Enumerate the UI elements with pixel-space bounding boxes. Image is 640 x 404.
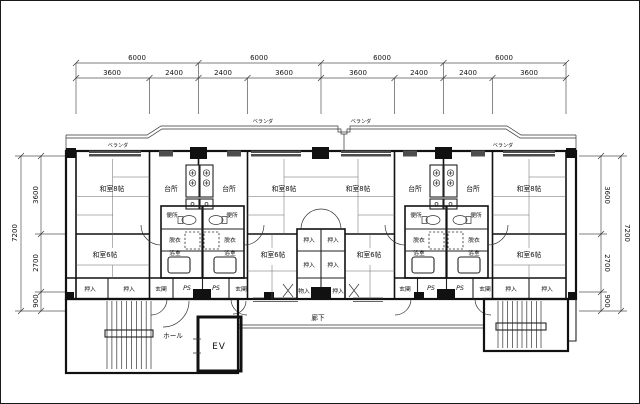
ps-label-3: PS bbox=[427, 285, 435, 292]
dim-top-minor-4: 3600 bbox=[275, 69, 293, 77]
dim-right-total: 7200 bbox=[623, 224, 631, 242]
center-closet-column bbox=[283, 209, 359, 299]
dressing-label-1: 脱衣 bbox=[169, 236, 181, 244]
dim-left-total: 7200 bbox=[11, 224, 19, 242]
closet-label-8: 押入 bbox=[505, 285, 517, 293]
closet-label-9: 押入 bbox=[541, 285, 553, 293]
veranda-label-2: ベランダ bbox=[253, 118, 273, 125]
staircase-left bbox=[66, 299, 238, 373]
dim-right-seg-3: 900 bbox=[603, 294, 611, 307]
floor-plan-sheet: 6000 6000 6000 6000 3600 2400 2400 3600 … bbox=[0, 0, 640, 404]
veranda-label-4: ベランダ bbox=[493, 142, 513, 149]
dim-top-major-3: 6000 bbox=[373, 54, 391, 62]
entrance-label-1: 玄関 bbox=[155, 285, 167, 293]
dim-left-seg-2: 2700 bbox=[32, 254, 40, 272]
left-dimension-lines: 7200 3600 2700 900 bbox=[11, 153, 66, 314]
dim-top-minor-7: 2400 bbox=[459, 69, 477, 77]
dim-top-major-1: 6000 bbox=[128, 54, 146, 62]
washitsu6-label-4: 和室6帖 bbox=[517, 250, 542, 259]
dim-right-seg-1: 3600 bbox=[603, 186, 611, 204]
toilet-label-3: 便所 bbox=[410, 211, 422, 219]
balcony-rail: ベランダ ベランダ ベランダ ベランダ bbox=[66, 118, 576, 151]
veranda-label-1: ベランダ bbox=[108, 142, 128, 149]
washitsu8-label-4: 和室8帖 bbox=[517, 184, 542, 193]
staircase-right bbox=[484, 299, 568, 351]
dim-top-minor-1: 3600 bbox=[103, 69, 121, 77]
veranda-label-3: ベランダ bbox=[351, 118, 371, 125]
door-arcs bbox=[141, 225, 508, 327]
kitchen-label-3: 台所 bbox=[408, 184, 422, 193]
windows bbox=[89, 151, 555, 302]
closet-label-5: 押入 bbox=[303, 261, 315, 269]
closet-label-6: 押入 bbox=[327, 261, 339, 269]
dim-top-minor-8: 3600 bbox=[520, 69, 538, 77]
hall-label: ホール bbox=[163, 332, 183, 340]
dim-top-minor-5: 3600 bbox=[349, 69, 367, 77]
dim-top-major-4: 6000 bbox=[495, 54, 513, 62]
bath-label-2: 浴室 bbox=[224, 249, 236, 257]
dressing-label-2: 脱衣 bbox=[224, 236, 236, 244]
right-dimension-lines: 7200 3600 2700 900 bbox=[579, 153, 631, 314]
kitchen-label-1: 台所 bbox=[164, 184, 178, 193]
ps-label-1: PS bbox=[183, 285, 191, 292]
toilet-label-2: 便所 bbox=[226, 211, 238, 219]
bath-label-4: 浴室 bbox=[468, 249, 480, 257]
elevator-label: EV bbox=[212, 342, 226, 352]
kitchen-label-4: 台所 bbox=[466, 184, 480, 193]
washitsu8-label-2: 和室8帖 bbox=[272, 184, 297, 193]
entrance-label-4: 玄関 bbox=[479, 285, 491, 293]
dressing-label-4: 脱衣 bbox=[468, 236, 480, 244]
closet-label-2: 押入 bbox=[123, 285, 135, 293]
dim-top-minor-2: 2400 bbox=[165, 69, 183, 77]
washitsu6-label-3: 和室6帖 bbox=[357, 250, 382, 259]
top-dimension-lines: 6000 6000 6000 6000 3600 2400 2400 3600 … bbox=[73, 54, 569, 114]
washitsu6-label-2: 和室6帖 bbox=[261, 250, 286, 259]
dressing-label-3: 脱衣 bbox=[413, 236, 425, 244]
washitsu8-label-1: 和室8帖 bbox=[100, 184, 125, 193]
storage-label: 物入 bbox=[298, 287, 310, 295]
closet-label-4: 押入 bbox=[327, 236, 339, 244]
dim-top-minor-6: 2400 bbox=[410, 69, 428, 77]
ps-label-2: PS bbox=[212, 285, 220, 292]
bath-label-3: 浴室 bbox=[413, 249, 425, 257]
ps-label-4: PS bbox=[456, 285, 464, 292]
entrance-label-2: 玄関 bbox=[235, 285, 247, 293]
washitsu6-label-1: 和室6帖 bbox=[93, 250, 118, 259]
dim-top-minor-3: 2400 bbox=[214, 69, 232, 77]
closet-label-7: 押入 bbox=[332, 287, 344, 295]
toilet-label-1: 便所 bbox=[166, 211, 178, 219]
corridor-label: 廊下 bbox=[311, 313, 325, 322]
closet-label-3: 押入 bbox=[303, 236, 315, 244]
dim-left-seg-3: 900 bbox=[32, 294, 40, 307]
dim-top-major-2: 6000 bbox=[250, 54, 268, 62]
closet-label-1: 押入 bbox=[84, 285, 96, 293]
dim-right-seg-2: 2700 bbox=[603, 254, 611, 272]
entrance-label-3: 玄関 bbox=[399, 285, 411, 293]
toilet-label-4: 便所 bbox=[470, 211, 482, 219]
dim-left-seg-1: 3600 bbox=[32, 186, 40, 204]
floor-plan-drawing: 6000 6000 6000 6000 3600 2400 2400 3600 … bbox=[1, 1, 639, 403]
corridor-railing bbox=[238, 299, 576, 341]
washitsu8-label-3: 和室8帖 bbox=[346, 184, 371, 193]
kitchen-label-2: 台所 bbox=[222, 184, 236, 193]
bath-label-1: 浴室 bbox=[169, 249, 181, 257]
